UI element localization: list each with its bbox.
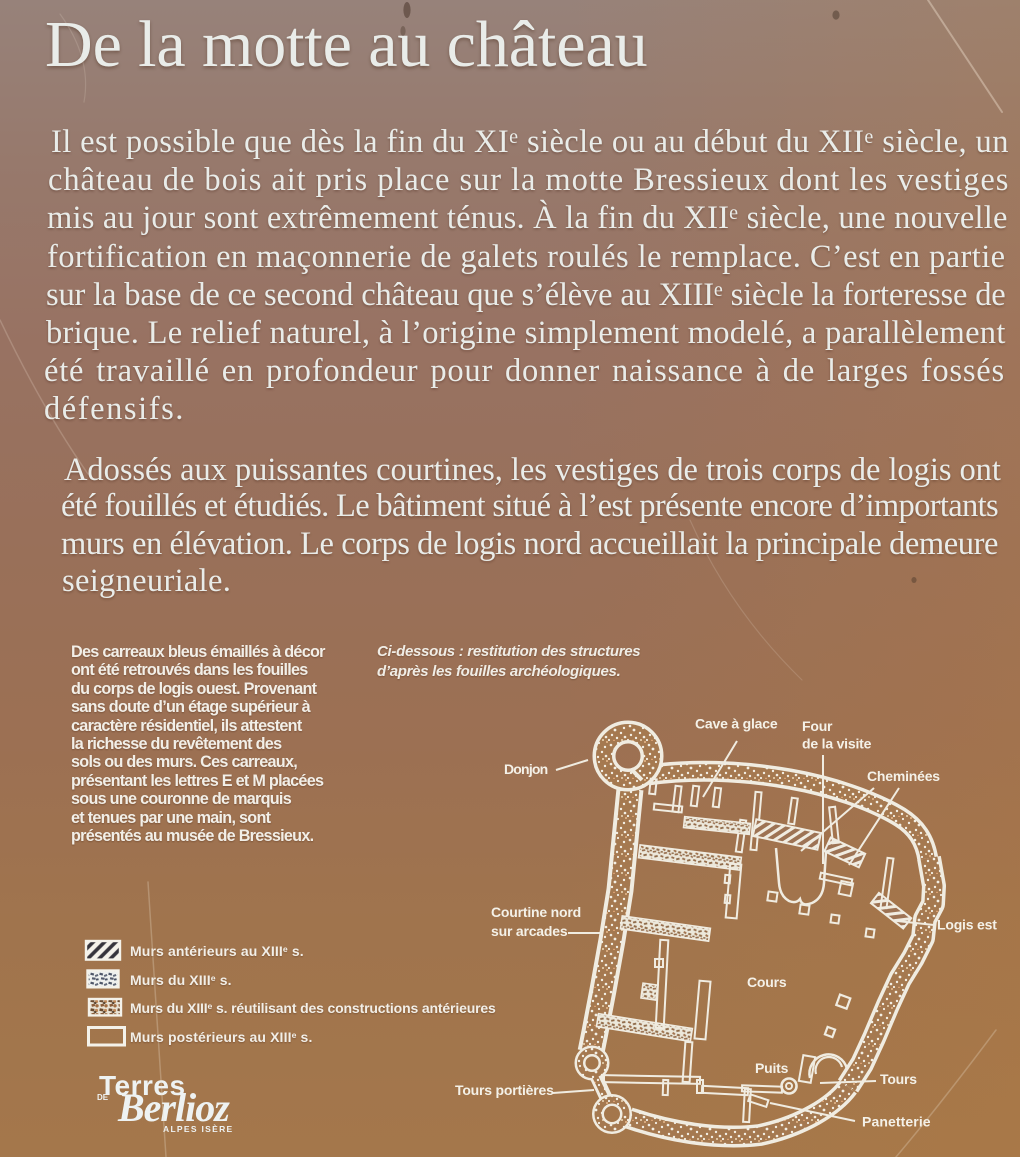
svg-text:ALPES ISÈRE: ALPES ISÈRE	[163, 1124, 234, 1134]
svg-text:Cours: Cours	[747, 974, 787, 990]
svg-text:de la visite: de la visite	[802, 736, 872, 752]
svg-text:Donjon: Donjon	[504, 761, 548, 777]
svg-text:Tours portières: Tours portières	[455, 1082, 554, 1098]
svg-text:Four: Four	[802, 718, 833, 734]
svg-text:Cave à glace: Cave à glace	[695, 716, 778, 732]
svg-text:Courtine nord: Courtine nord	[491, 904, 581, 920]
svg-text:Cheminées: Cheminées	[867, 768, 940, 784]
svg-text:Puits: Puits	[755, 1060, 789, 1076]
svg-text:Tours: Tours	[880, 1071, 917, 1087]
svg-text:sur arcades: sur arcades	[491, 923, 568, 939]
svg-text:Logis est: Logis est	[937, 917, 997, 933]
svg-text:DE: DE	[97, 1093, 109, 1102]
